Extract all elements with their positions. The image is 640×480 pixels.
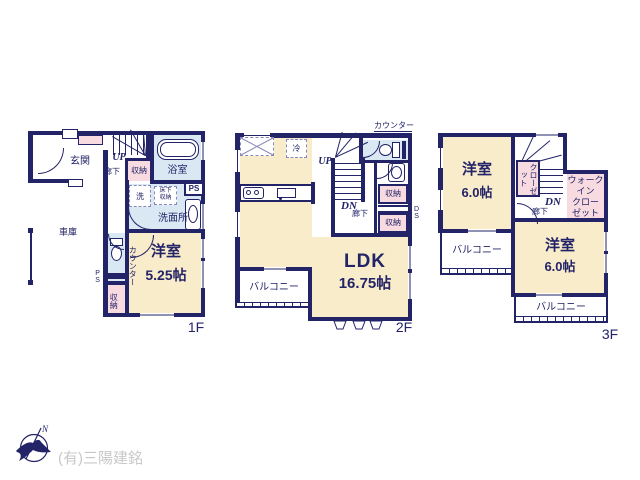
company-name: (有)三陽建銘	[58, 450, 178, 467]
floorplan-canvas: 玄関 UP 廊下 収納 浴室 PS 洗 床下 収納 洗面所 車庫 PS カウンタ…	[0, 0, 640, 480]
footer: N (有)三陽建銘	[0, 0, 640, 480]
compass-north-label: N	[41, 424, 49, 434]
compass-icon: N	[14, 421, 58, 471]
